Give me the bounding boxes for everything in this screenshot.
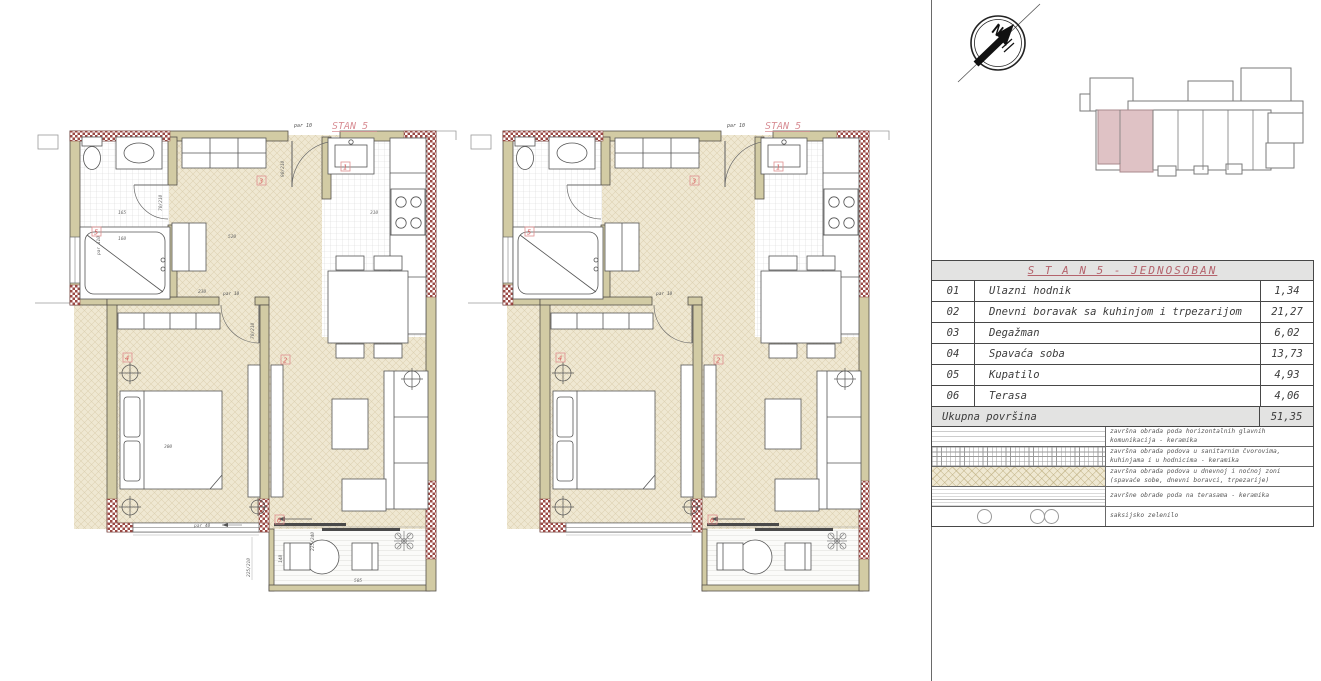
floor-plan-b-slot: 1 2 3 4 5 6 STAN 5 par 10 par 10: [468, 120, 903, 605]
plant-icon: [827, 531, 847, 551]
dim-door-bath: 70/210: [158, 194, 164, 211]
dim-hall: 230: [198, 289, 206, 295]
legend-text: završna obrada podova u sanitarnim čvoro…: [1106, 447, 1313, 466]
dining-set: [328, 256, 408, 358]
row-name: Terasa: [975, 386, 1261, 406]
tv-unit: [271, 365, 283, 497]
toilet-icon: [84, 147, 101, 170]
area-table: S T A N 5 - JEDNOSOBAN 01 Ulazni hodnik …: [931, 260, 1314, 527]
room-tag-4: 4: [558, 355, 562, 363]
par-label-bottom: par 40: [194, 523, 211, 529]
bedroom-wardrobe-side: [248, 365, 260, 497]
north-compass: N: [952, 2, 1044, 86]
chair: [374, 256, 402, 270]
legend-text: saksijsko zelenilo: [1106, 507, 1313, 526]
legend-text: završna obrada poda horizontalnih glavni…: [1106, 427, 1313, 446]
total-label: Ukupna površina: [932, 407, 1260, 426]
sink-icon: [557, 143, 587, 163]
row-name: Dnevni boravak sa kuhinjom i trpezarijom: [975, 302, 1261, 322]
room-tag-2: 2: [283, 357, 287, 365]
pillow: [124, 441, 140, 481]
keyplan-highlighted-unit: [1098, 110, 1153, 172]
sofa-chaise: [775, 479, 819, 511]
legend-swatch-horizontal-lines: [932, 427, 1106, 446]
chair: [769, 256, 797, 270]
room-tag-3: 3: [258, 178, 263, 186]
row-area: 13,73: [1261, 344, 1313, 364]
table-title-row: S T A N 5 - JEDNOSOBAN: [932, 261, 1313, 281]
row-num: 06: [932, 386, 975, 406]
total-area: 51,35: [1260, 407, 1313, 426]
plant-circle-icon: [1030, 509, 1045, 524]
coffee-table: [332, 399, 368, 449]
compass-needle: [976, 39, 1002, 64]
legend-row: završna obrada poda horizontalnih glavni…: [932, 427, 1313, 447]
room-tag-1: 1: [776, 164, 780, 172]
legend-row: završne obrade poda na terasama - kerami…: [932, 487, 1313, 507]
par-label-mid: par 10: [656, 291, 673, 297]
room-tag-4: 4: [125, 355, 129, 363]
row-name: Kupatilo: [975, 365, 1261, 385]
plant-circle-icon: [977, 509, 992, 524]
row-area: 4,06: [1261, 386, 1313, 406]
toilet-tank: [515, 137, 535, 146]
room-tag-5: 5: [94, 229, 98, 237]
dim-corridor: 520: [228, 234, 236, 240]
dim-bed: 300: [163, 444, 172, 450]
row-num: 03: [932, 323, 975, 343]
legend-row: završna obrada podova u sanitarnim čvoro…: [932, 447, 1313, 467]
tv-unit: [704, 365, 716, 497]
chair: [336, 256, 364, 270]
table-row: 05 Kupatilo 4,93: [932, 365, 1313, 386]
row-num: 04: [932, 344, 975, 364]
legend-swatch-beige-hatch: [932, 467, 1106, 486]
par-label-left: par 110: [96, 236, 102, 255]
par-label-mid: par 10: [223, 291, 240, 297]
legend-text: završne obrade poda na terasama - kerami…: [1106, 487, 1313, 506]
chair: [807, 344, 835, 358]
row-area: 4,93: [1261, 365, 1313, 385]
dim-door-entry: 90/210: [280, 160, 286, 177]
room-tag-1: 1: [343, 164, 347, 172]
pillow: [557, 441, 573, 481]
dining-table: [328, 271, 408, 343]
row-num: 05: [932, 365, 975, 385]
terrace-chair: [785, 543, 811, 570]
par-label-top: par 10: [294, 123, 312, 129]
coffee-table: [765, 399, 801, 449]
legend-row: saksijsko zelenilo: [932, 507, 1313, 526]
building-key-plan: [1078, 58, 1310, 186]
bedroom-wardrobe: [118, 313, 220, 329]
chair: [769, 344, 797, 358]
table-row: 06 Terasa 4,06: [932, 386, 1313, 407]
dim-bath-b: 160: [118, 236, 126, 242]
table-row: 01 Ulazni hodnik 1,34: [932, 281, 1313, 302]
plant-icon: [394, 531, 414, 551]
room-tag-3: 3: [691, 178, 696, 186]
dim-door-bed: 70/210: [250, 322, 256, 339]
dining-set: [761, 256, 841, 358]
bedroom-wardrobe-side: [681, 365, 693, 497]
dim-kitchen: 310: [369, 210, 378, 216]
row-name: Degažman: [975, 323, 1261, 343]
architectural-sheet: 1 2 3 4 5 6 STAN 5 par 10 par 10 230 520…: [0, 0, 1321, 681]
table-row: 02 Dnevni boravak sa kuhinjom i trpezari…: [932, 302, 1313, 323]
row-name: Ulazni hodnik: [975, 281, 1261, 301]
room-tag-6: 6: [277, 517, 281, 525]
row-area: 1,34: [1261, 281, 1313, 301]
row-num: 01: [932, 281, 975, 301]
legend-row: završna obrada podova u dnevnoj i noćnoj…: [932, 467, 1313, 487]
table-title: S T A N 5 - JEDNOSOBAN: [1028, 264, 1218, 277]
chair: [807, 256, 835, 270]
terrace-chair: [717, 543, 743, 570]
terrace-chair: [284, 543, 310, 570]
terrace-chair: [352, 543, 378, 570]
floor-plan-a: 1 2 3 4 5 6 STAN 5 par 10 par 10 230 520…: [35, 120, 470, 605]
legend-swatch-plant-circles: [932, 507, 1106, 526]
table-row: 04 Spavaća soba 13,73: [932, 344, 1313, 365]
dim-window-bed: 225/210: [246, 558, 252, 577]
dining-table: [761, 271, 841, 343]
pillow: [124, 397, 140, 437]
stan-label: STAN 5: [765, 121, 801, 132]
dim-bath-a: 165: [118, 210, 126, 216]
row-name: Spavaća soba: [975, 344, 1261, 364]
row-area: 6,02: [1261, 323, 1313, 343]
bedroom-wardrobe: [551, 313, 653, 329]
legend-swatch-tile-grid: [932, 447, 1106, 466]
sink-icon: [124, 143, 154, 163]
room-tag-2: 2: [716, 357, 720, 365]
stan-label: STAN 5: [332, 121, 368, 132]
sofa: [384, 371, 428, 509]
room-tag-6: 6: [710, 517, 714, 525]
toilet-tank: [82, 137, 102, 146]
dim-terrace: 505: [354, 578, 362, 584]
legend-text: završna obrada podova u dnevnoj i noćnoj…: [1106, 467, 1313, 486]
dim-chair: 148: [278, 555, 284, 563]
plant-circle-icon: [1044, 509, 1059, 524]
toilet-icon: [517, 147, 534, 170]
dim-door-terrace: 225/240: [310, 532, 316, 551]
chair: [336, 344, 364, 358]
sofa-chaise: [342, 479, 386, 511]
floor-plan-b: 1 2 3 4 5 6 STAN 5 par 10 par 10: [468, 120, 903, 605]
row-area: 21,27: [1261, 302, 1313, 322]
table-total-row: Ukupna površina 51,35: [932, 407, 1313, 427]
chair: [374, 344, 402, 358]
sofa: [817, 371, 861, 509]
pillow: [557, 397, 573, 437]
room-tag-5: 5: [527, 229, 531, 237]
table-row: 03 Degažman 6,02: [932, 323, 1313, 344]
par-label-top: par 10: [727, 123, 745, 129]
row-num: 02: [932, 302, 975, 322]
legend-swatch-terrace-lines: [932, 487, 1106, 506]
